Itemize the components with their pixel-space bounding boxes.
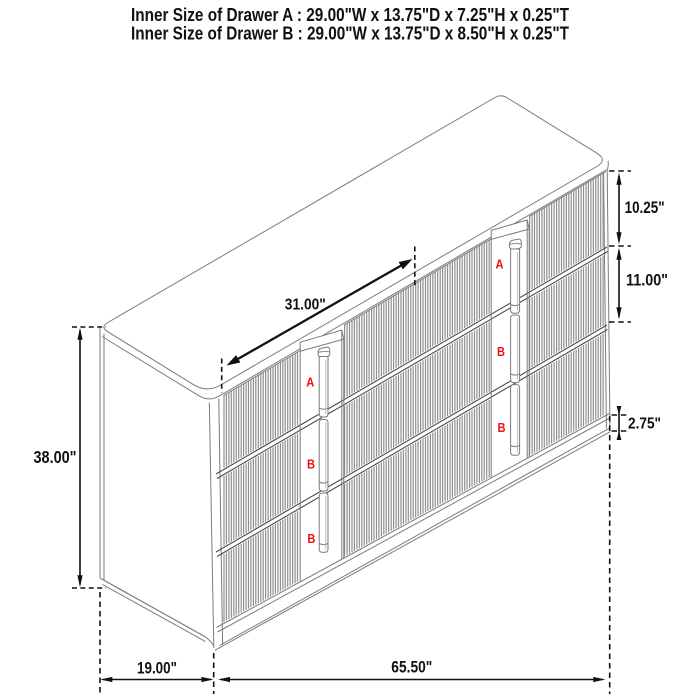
svg-text:B: B [497, 344, 505, 359]
svg-text:19.00": 19.00" [137, 660, 177, 678]
svg-text:2.75": 2.75" [628, 416, 661, 433]
svg-text:A: A [306, 374, 315, 389]
svg-text:38.00": 38.00" [34, 447, 77, 467]
svg-text:65.50": 65.50" [391, 659, 432, 677]
svg-text:B: B [307, 457, 315, 472]
svg-text:B: B [307, 531, 315, 546]
svg-text:31.00": 31.00" [285, 297, 326, 314]
svg-text:A: A [496, 257, 505, 272]
svg-text:10.25": 10.25" [625, 199, 665, 217]
svg-text:Inner Size of Drawer B : 29.00: Inner Size of Drawer B : 29.00"W x 13.75… [131, 23, 570, 44]
svg-text:11.00": 11.00" [626, 272, 668, 290]
svg-text:B: B [498, 420, 506, 435]
